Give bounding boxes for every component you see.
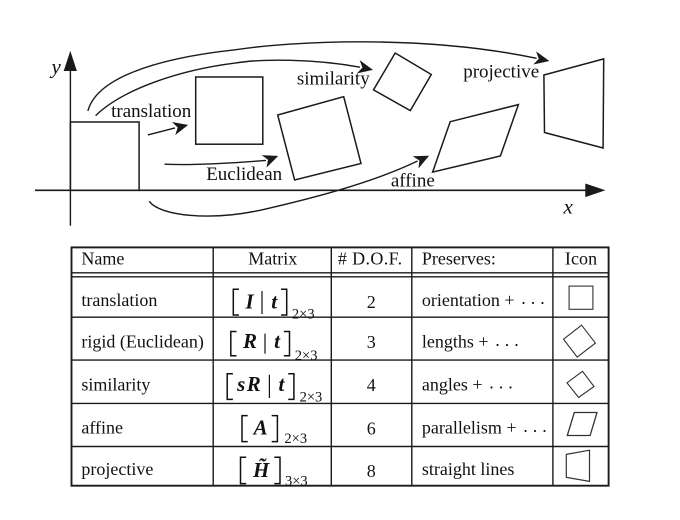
svg-text:similarity: similarity (81, 374, 150, 394)
svg-text:3: 3 (367, 332, 376, 352)
svg-text:affine: affine (391, 170, 435, 191)
svg-text:Euclidean: Euclidean (206, 164, 282, 185)
svg-text:# D.O.F.: # D.O.F. (338, 249, 402, 269)
svg-text:orientation +···: orientation +··· (422, 290, 549, 313)
svg-text:3×3: 3×3 (285, 474, 308, 490)
svg-text:H̃: H̃ (252, 458, 270, 482)
svg-text:Icon: Icon (565, 249, 597, 269)
svg-text:straight lines: straight lines (422, 459, 515, 479)
svg-text:parallelism +···: parallelism +··· (422, 418, 551, 441)
svg-text:rigid (Euclidean): rigid (Euclidean) (81, 332, 203, 353)
svg-text:lengths +···: lengths +··· (422, 332, 523, 355)
svg-text:2×3: 2×3 (295, 348, 318, 364)
svg-text:Preserves:: Preserves: (422, 249, 496, 269)
svg-text:2×3: 2×3 (284, 431, 307, 447)
svg-text:x: x (563, 195, 574, 219)
svg-text:s: s (236, 372, 245, 396)
svg-text:translation: translation (111, 101, 192, 122)
svg-text:6: 6 (367, 419, 376, 439)
svg-text:I: I (245, 289, 255, 313)
svg-text:2×3: 2×3 (292, 306, 315, 322)
svg-text:Name: Name (81, 249, 124, 269)
svg-text:angles +···: angles +··· (422, 374, 517, 397)
svg-text:translation: translation (81, 290, 157, 310)
svg-text:R: R (242, 329, 257, 353)
svg-text:affine: affine (81, 418, 123, 438)
svg-text:projective: projective (81, 459, 153, 479)
svg-text:Matrix: Matrix (248, 249, 297, 269)
svg-text:projective: projective (463, 62, 539, 83)
svg-text:2×3: 2×3 (300, 390, 323, 406)
svg-text:2: 2 (367, 292, 376, 312)
svg-text:8: 8 (367, 461, 376, 481)
svg-text:R: R (246, 372, 261, 396)
svg-text:y: y (50, 55, 62, 79)
svg-text:4: 4 (367, 375, 376, 395)
svg-text:A: A (252, 416, 268, 440)
